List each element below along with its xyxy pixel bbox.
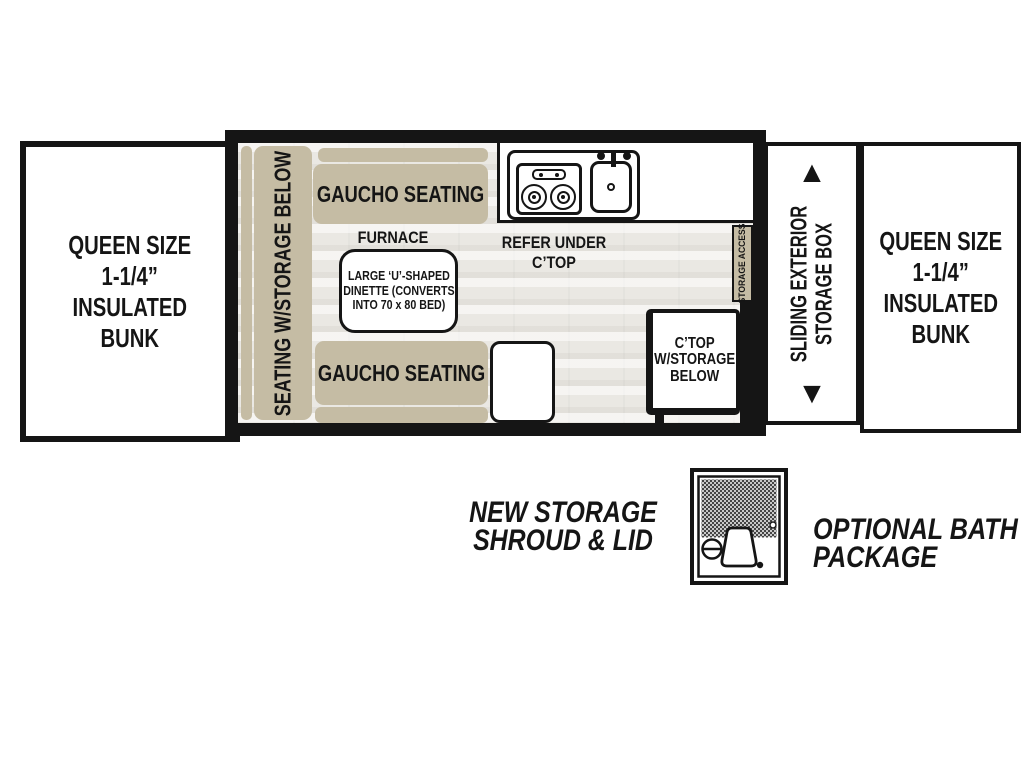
faucet-handle-icon — [623, 152, 631, 160]
gaucho-top-seat: GAUCHO SEATING — [313, 164, 488, 224]
burner-center — [557, 191, 570, 204]
burner-icon — [521, 184, 547, 210]
sink-drain — [607, 183, 615, 191]
sink-icon — [590, 161, 632, 213]
gaucho-bottom-label: GAUCHO SEATING — [318, 360, 485, 387]
storage-shroud-callout: NEW STORAGE SHROUD & LID — [463, 499, 662, 555]
bath-package-callout: OPTIONAL BATH PACKAGE — [813, 516, 1018, 572]
stove-knob-icon — [539, 173, 543, 177]
refer-line-1: REFER UNDER — [486, 233, 622, 253]
right-bunk-line-4: BUNK — [879, 319, 1002, 350]
sliding-panel-label: SLIDING EXTERIOR STORAGE BOX — [787, 205, 837, 361]
side-seating-backrest — [241, 146, 252, 420]
left-bunk-line-2: 1-1/4” — [69, 261, 192, 292]
right-bunk-line-3: INSULATED — [879, 288, 1002, 319]
left-bunk-line-4: BUNK — [69, 323, 192, 354]
right-bunk-line-1: QUEEN SIZE — [879, 226, 1002, 257]
storage-shroud-line-2: SHROUD & LID — [463, 527, 662, 555]
toilet-icon — [722, 528, 756, 566]
bath-package-icon — [690, 468, 788, 585]
dinette-line-1: LARGE ‘U’-SHAPED — [343, 269, 454, 284]
down-arrow-icon: ▼ — [797, 379, 827, 409]
burner-icon — [550, 184, 576, 210]
stove-controls — [532, 169, 566, 180]
storage-shroud-line-1: NEW STORAGE — [463, 499, 662, 527]
right-bunk-label: QUEEN SIZE 1-1/4” INSULATED BUNK — [879, 226, 1002, 350]
gaucho-seat-end — [490, 341, 555, 423]
right-bunk-line-2: 1-1/4” — [879, 257, 1002, 288]
left-bunk-line-3: INSULATED — [69, 292, 192, 323]
side-seating-bench: SEATING W/STORAGE BELOW — [254, 146, 312, 420]
cabinet-foot — [655, 415, 664, 423]
dinette-label: LARGE ‘U’-SHAPED DINETTE (CONVERTS INTO … — [343, 269, 454, 313]
stove-icon — [516, 163, 582, 215]
floorplan-canvas: QUEEN SIZE 1-1/4” INSULATED BUNK SEATING… — [0, 0, 1024, 768]
shower-head-icon — [770, 522, 776, 528]
refer-label: REFER UNDER C’TOP — [486, 233, 622, 273]
bath-package-drawing — [697, 475, 781, 578]
faucet-handle-icon — [597, 152, 605, 160]
left-bunk: QUEEN SIZE 1-1/4” INSULATED BUNK — [20, 141, 240, 442]
refer-line-2: C’TOP — [486, 253, 622, 273]
sliding-panel-line-2: STORAGE BOX — [812, 205, 837, 361]
stove-sink-unit — [507, 150, 640, 220]
bath-package-line-1: OPTIONAL BATH — [813, 516, 1018, 544]
gaucho-bottom-seat: GAUCHO SEATING — [315, 341, 488, 405]
stove-knob-icon — [555, 173, 559, 177]
gaucho-bottom-backrest — [315, 407, 488, 423]
dinette-line-3: INTO 70 x 80 BED) — [343, 298, 454, 313]
sliding-storage-panel: ▲ SLIDING EXTERIOR STORAGE BOX ▼ — [764, 142, 860, 425]
furnace-label: FURNACE — [342, 228, 444, 248]
dinette-table: LARGE ‘U’-SHAPED DINETTE (CONVERTS INTO … — [339, 249, 458, 333]
right-bunk: QUEEN SIZE 1-1/4” INSULATED BUNK — [860, 142, 1021, 433]
drain-dot-icon — [757, 562, 763, 568]
dinette-line-2: DINETTE (CONVERTS — [343, 284, 454, 299]
sliding-panel-line-1: SLIDING EXTERIOR — [787, 205, 812, 361]
gaucho-top-backrest — [318, 148, 488, 162]
up-arrow-icon: ▲ — [797, 158, 827, 188]
left-bunk-label: QUEEN SIZE 1-1/4” INSULATED BUNK — [69, 230, 192, 354]
left-bunk-line-1: QUEEN SIZE — [69, 230, 192, 261]
side-seating-label: SEATING W/STORAGE BELOW — [270, 150, 297, 415]
burner-center — [528, 191, 541, 204]
cabin-body: SEATING W/STORAGE BELOW GAUCHO SEATING — [225, 130, 766, 436]
gaucho-top-label: GAUCHO SEATING — [317, 181, 484, 208]
bath-package-line-2: PACKAGE — [813, 544, 1018, 572]
